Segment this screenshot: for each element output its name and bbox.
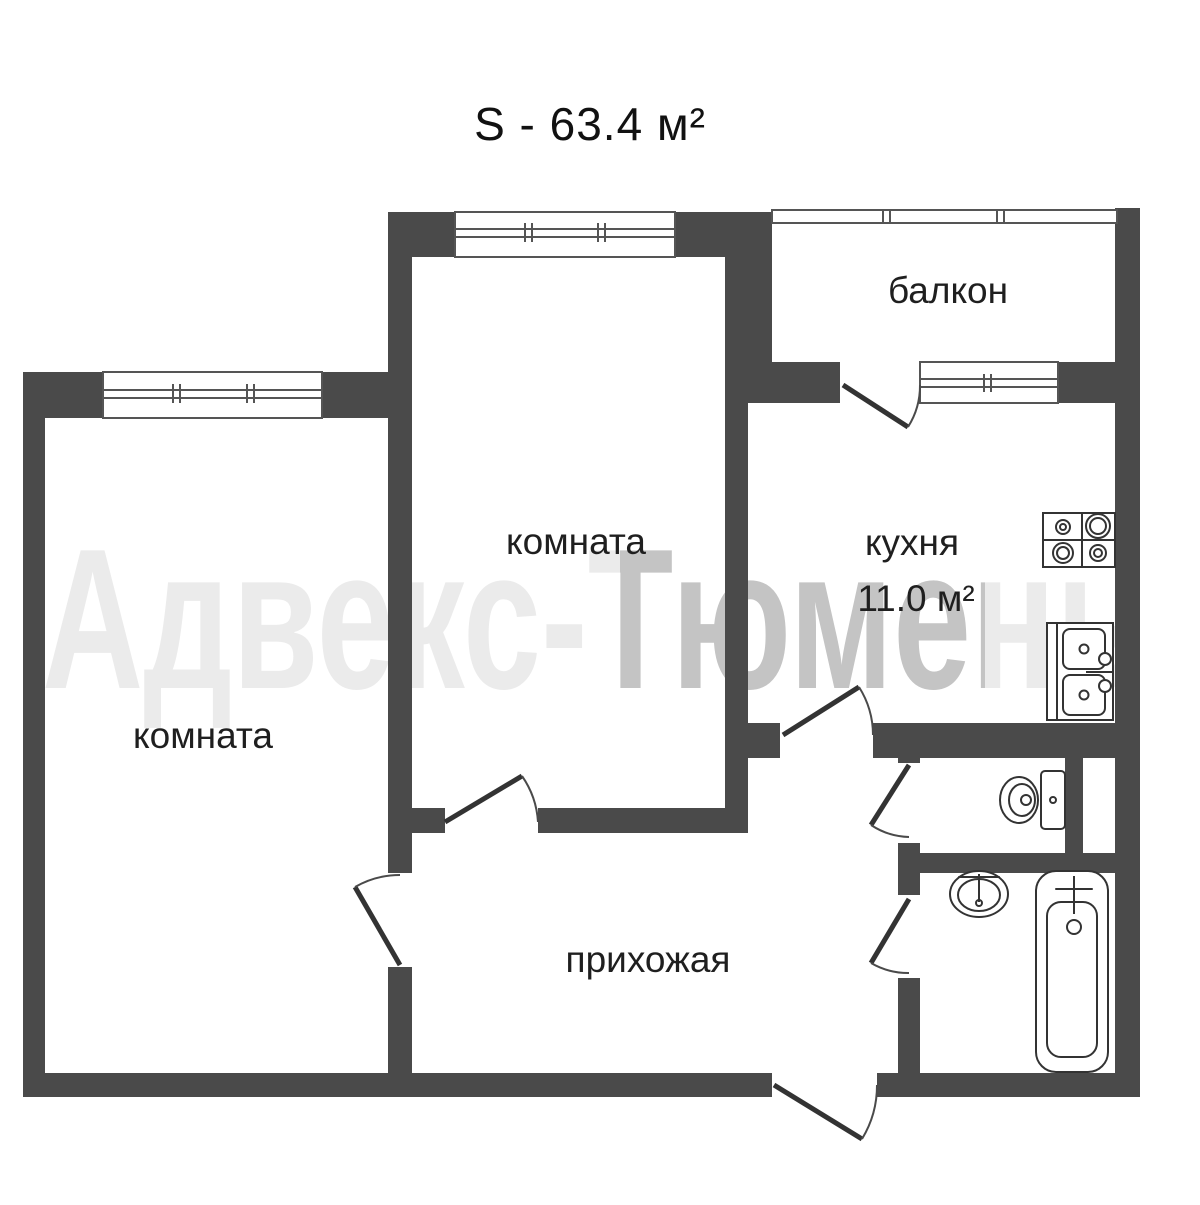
floor-plan-drawing: Адвекс-Тюмень Адвекс-Тюмень (0, 0, 1200, 1200)
kitchen-label: кухня (865, 522, 959, 563)
bathtub (1036, 871, 1108, 1072)
balcony-rail (772, 210, 1117, 223)
window-kitchen-balcony (920, 362, 1058, 403)
wall-left-outer (23, 372, 45, 1097)
balcony-label: балкон (888, 270, 1008, 311)
wall-wc-bath-divider (898, 853, 1140, 873)
wall-bottom-outer (23, 1073, 1140, 1097)
opening-bath (896, 895, 922, 978)
plan-title: S - 63.4 м² (474, 98, 706, 150)
middle-room-label: комната (506, 521, 646, 562)
opening-middle-room (445, 806, 538, 835)
bathroom-sink (950, 871, 1008, 917)
floor-plan: Адвекс-Тюмень Адвекс-Тюмень (0, 0, 1200, 1200)
kitchen-area-label: 11.0 м² (857, 578, 974, 619)
window-left-room (103, 372, 322, 418)
kitchen-sink (1047, 623, 1113, 720)
wall-wc-right (1065, 758, 1083, 853)
window-middle-room (455, 212, 675, 257)
stove (1043, 513, 1115, 567)
wall-right-outer (1115, 208, 1140, 1097)
left-room-label: комната (133, 715, 273, 756)
opening-balcony (840, 360, 920, 405)
hallway-label: прихожая (566, 939, 731, 980)
